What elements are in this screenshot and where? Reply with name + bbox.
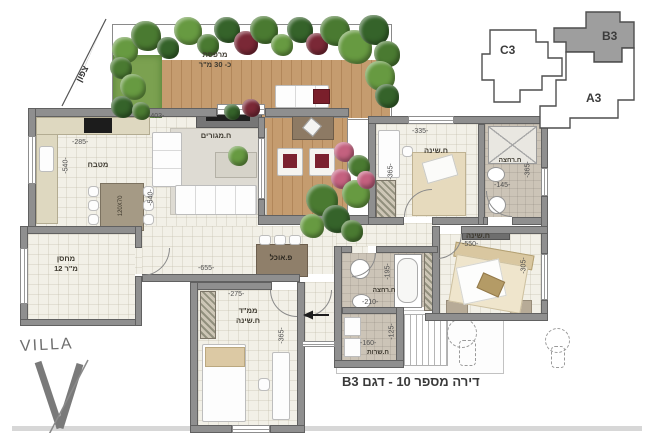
dim-label: -540- [148, 189, 155, 205]
wall-segment [334, 360, 404, 368]
dashed-box-1 [459, 340, 476, 366]
dim-label: -365- [279, 327, 286, 343]
washer [344, 317, 361, 336]
wall-segment [190, 282, 272, 290]
dim-label: -305- [521, 257, 528, 273]
terrace-area: כ- 30 מ"ר [186, 60, 244, 70]
dim-label: -335- [412, 128, 428, 135]
plant [242, 99, 260, 117]
plot-boundary [12, 426, 642, 431]
dim-label: -550- [462, 241, 478, 248]
bedroom2-window [408, 116, 454, 124]
plant [375, 84, 399, 108]
north-label: צפון [74, 64, 91, 84]
flower-plant [357, 171, 375, 189]
bedroom2-label: ח.שינה [416, 146, 456, 156]
dining-label: פ.אוכל [258, 253, 304, 263]
plant [228, 146, 248, 166]
wall-segment [483, 217, 488, 225]
wall-segment [135, 276, 142, 326]
wall-segment [425, 313, 548, 321]
plant [300, 214, 324, 238]
wall-segment [376, 246, 438, 253]
dim-label: -145- [494, 182, 510, 189]
dim-label: -540- [63, 157, 70, 173]
dim-label: -195- [385, 263, 392, 279]
dim-label: -275- [228, 291, 244, 298]
living-glass-door [258, 138, 265, 199]
mamad-bed-pillow [205, 347, 245, 367]
dim-label: -655- [198, 265, 214, 272]
bedroom2-closet [376, 180, 396, 218]
mamad-sub: ח.שינה [224, 316, 272, 326]
armchair-cushion-2 [315, 154, 329, 168]
storage-area: 12 מ"ר [42, 264, 90, 274]
dining-chair [289, 235, 301, 245]
storage-name: מחסן [42, 254, 90, 264]
armchair-cushion-1 [283, 154, 297, 168]
toilet [487, 167, 505, 182]
kitchen-table-size: 120X70 [118, 188, 126, 224]
kitchen-chair [88, 186, 99, 197]
plant [132, 102, 150, 120]
mamad-label: ממ"ד ח.שינה [224, 306, 272, 326]
wall-segment [270, 425, 305, 433]
living-label: ח.מגורים [192, 131, 240, 141]
dining-chair [274, 235, 286, 245]
wall-segment [20, 226, 142, 234]
kitchen-window [28, 136, 36, 184]
kitchen-label: מטבח [78, 160, 118, 170]
plant [341, 220, 363, 242]
wall-segment [142, 274, 300, 282]
storage-floor [28, 234, 135, 319]
wall-segment [396, 307, 404, 367]
sofa-horizontal [175, 185, 257, 215]
entry-arrow-icon [302, 308, 332, 322]
mamad-closet [200, 291, 216, 339]
north-arrow-icon: צפון [48, 16, 122, 108]
kitchen-chair [88, 200, 99, 211]
wall-segment [190, 282, 198, 433]
dining-chair [259, 235, 271, 245]
wall-segment [20, 319, 142, 326]
storage-label: מחסן 12 מ"ר [42, 254, 90, 274]
dim-label: -403- [148, 113, 164, 120]
plant [224, 104, 240, 120]
wall-segment [368, 217, 404, 225]
kitchen-chair [88, 214, 99, 225]
wall-segment [297, 282, 305, 433]
mamad-chair [258, 378, 270, 391]
cooktop [84, 118, 112, 133]
floor-plan: מרפסת כ- 30 מ"ר [0, 0, 650, 433]
dim-label: -285- [72, 139, 88, 146]
bathtub-inner [397, 258, 418, 303]
terrace-label: מרפסת כ- 30 מ"ר [186, 50, 244, 70]
master-window [541, 254, 548, 300]
key-plan-label-c3: C3 [500, 43, 516, 57]
dim-label: -125- [389, 323, 396, 339]
apartment-caption: דירה מספר 10 - דגם B3 [342, 374, 480, 389]
dim-label: -365- [525, 161, 532, 177]
kitchen-chair [143, 214, 154, 225]
villa-logo-v-icon [30, 360, 94, 432]
key-plan: C3 B3 A3 [470, 8, 642, 136]
master-label: ח.שינה [456, 231, 500, 241]
plant [157, 37, 179, 59]
wall-segment [342, 307, 402, 314]
wall-segment [265, 108, 349, 117]
mamad-name: ממ"ד [224, 306, 272, 316]
terrace-name: מרפסת [186, 50, 244, 60]
villa-logo: VILLA [20, 336, 100, 432]
wall-segment [478, 124, 485, 225]
key-plan-unit-c3 [482, 30, 562, 102]
bath-top-window [541, 168, 548, 196]
storage-window [20, 248, 28, 304]
dim-label: -160- [360, 340, 376, 347]
bath-mid-label: ח.רחצה [362, 287, 406, 295]
dim-label: -365- [388, 163, 395, 179]
key-plan-label-b3: B3 [602, 29, 618, 43]
dim-label: -210- [362, 299, 378, 306]
outdoor-grill [313, 89, 330, 104]
wall-segment [432, 217, 483, 225]
dashed-box-2 [551, 346, 565, 368]
key-plan-label-a3: A3 [586, 91, 602, 105]
wall-segment [334, 246, 342, 368]
wall-segment [258, 117, 265, 138]
kitchen-sink [39, 146, 54, 172]
wall-segment [190, 425, 232, 433]
sofa-vertical [152, 132, 182, 187]
stairs [404, 314, 448, 366]
wall-segment [541, 196, 548, 254]
wall-segment [135, 226, 142, 248]
mamad-window [232, 425, 270, 433]
mamad-desk [272, 352, 290, 420]
entry-threshold [302, 341, 335, 347]
service-label: ח.שרות [358, 349, 398, 357]
villa-logo-text: VILLA [20, 334, 101, 356]
